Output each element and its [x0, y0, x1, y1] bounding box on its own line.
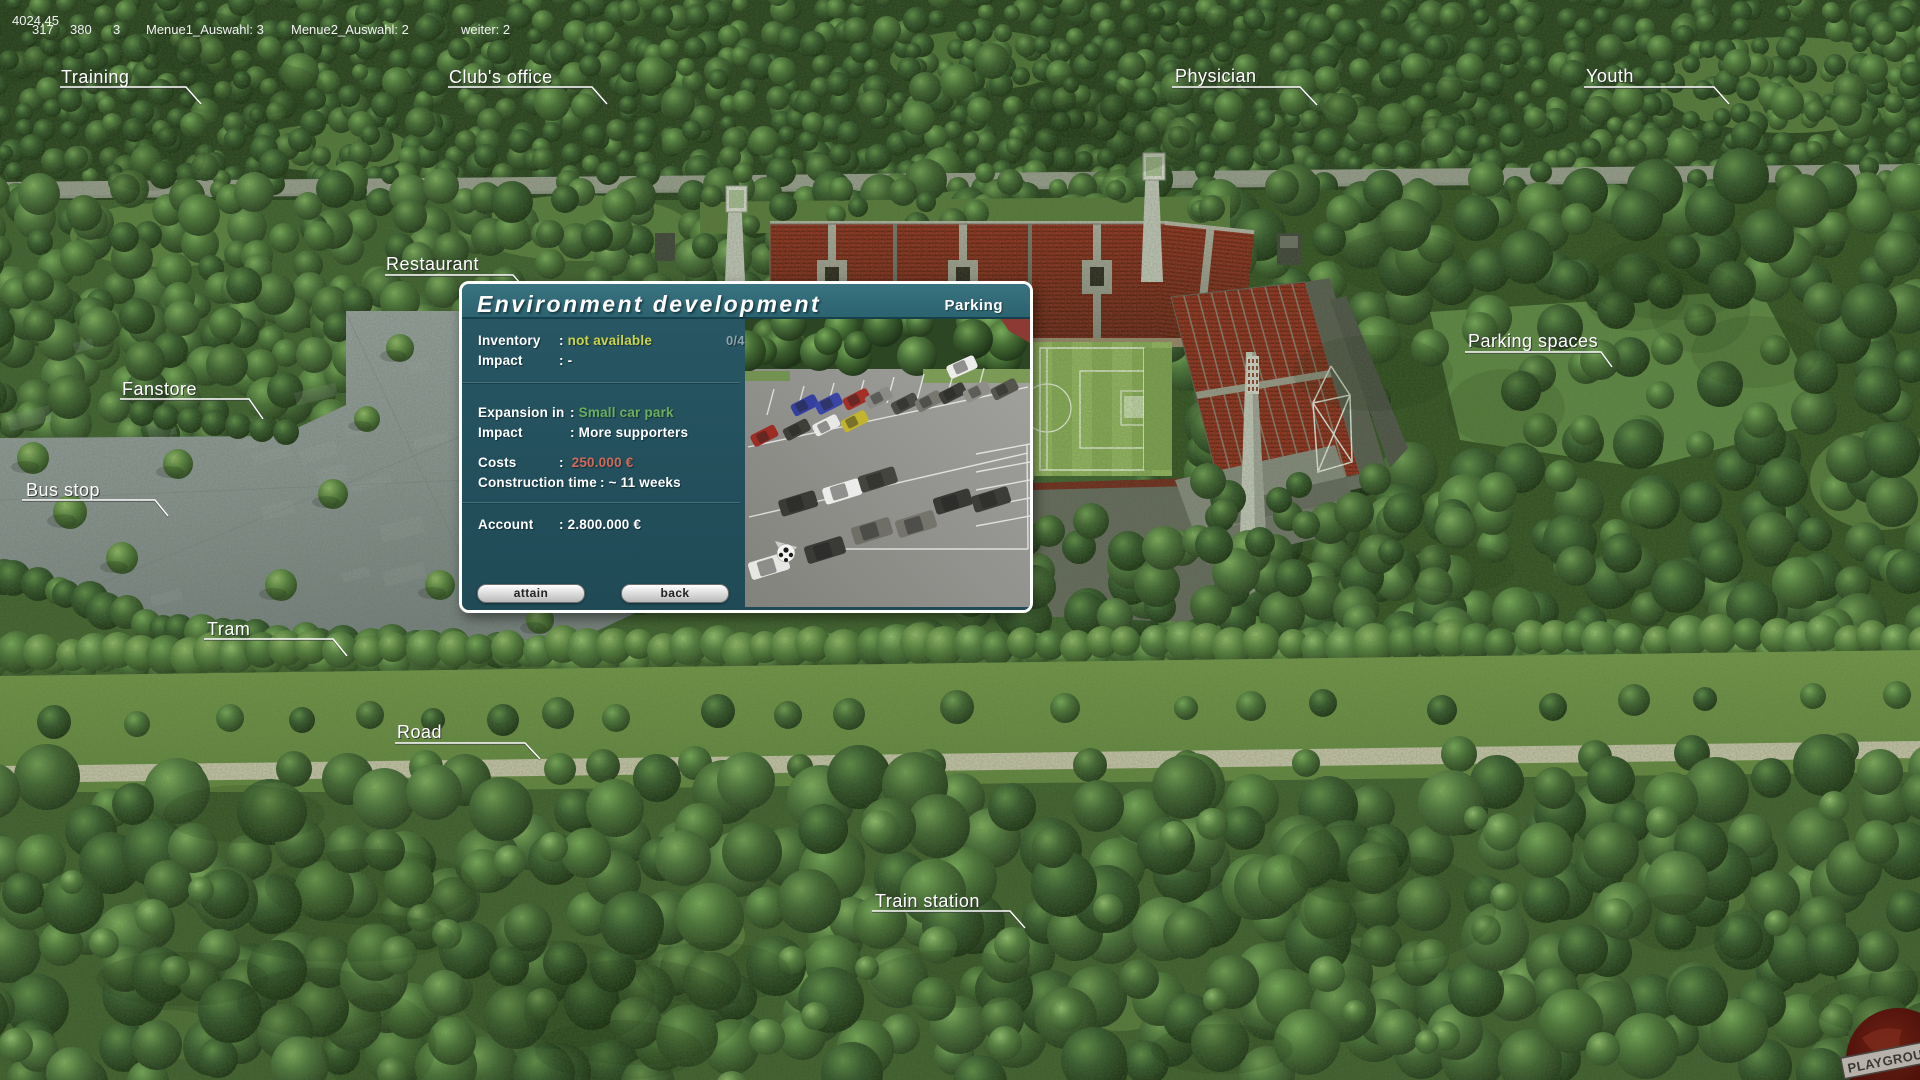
svg-text:Tram: Tram [207, 619, 250, 639]
svg-text:317: 317 [32, 22, 54, 37]
svg-text:Restaurant: Restaurant [386, 254, 479, 274]
svg-text:Menue1_Auswahl: 3: Menue1_Auswahl: 3 [146, 22, 264, 37]
svg-text:Train station: Train station [875, 891, 980, 911]
svg-text:3: 3 [113, 22, 120, 37]
svg-text:Parking spaces: Parking spaces [1468, 331, 1598, 351]
svg-text:Bus stop: Bus stop [26, 480, 100, 500]
svg-text:Road: Road [397, 722, 442, 742]
svg-text:Youth: Youth [1586, 66, 1634, 86]
svg-text:Physician: Physician [1175, 66, 1257, 86]
svg-text:weiter: 2: weiter: 2 [460, 22, 510, 37]
svg-text:380: 380 [70, 22, 92, 37]
svg-text:Club's office: Club's office [449, 67, 553, 87]
svg-text:Fanstore: Fanstore [122, 379, 197, 399]
svg-text:Training: Training [61, 67, 129, 87]
svg-text:Menue2_Auswahl: 2: Menue2_Auswahl: 2 [291, 22, 409, 37]
